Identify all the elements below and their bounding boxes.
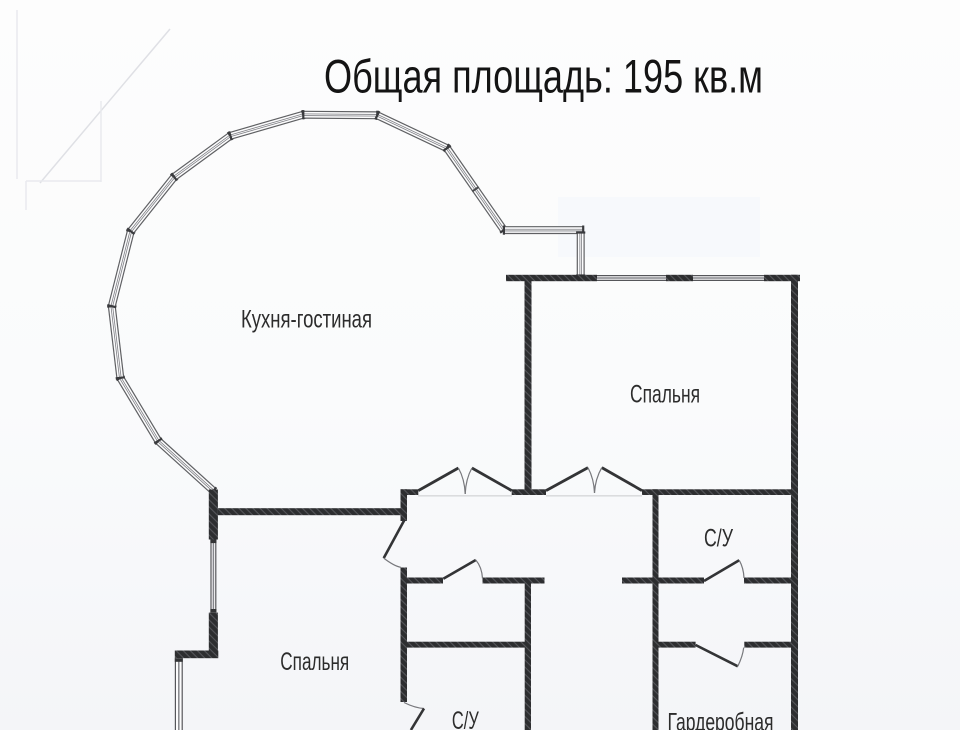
svg-text:С/У: С/У: [452, 707, 479, 730]
svg-text:Общая площадь: 195 кв.м: Общая площадь: 195 кв.м: [324, 50, 763, 103]
svg-text:С/У: С/У: [704, 525, 733, 553]
svg-text:Спальня: Спальня: [280, 648, 349, 676]
svg-text:Спальня: Спальня: [630, 381, 700, 409]
svg-text:Кухня-гостиная: Кухня-гостиная: [241, 306, 372, 334]
svg-text:Гардеробная: Гардеробная: [668, 709, 774, 730]
